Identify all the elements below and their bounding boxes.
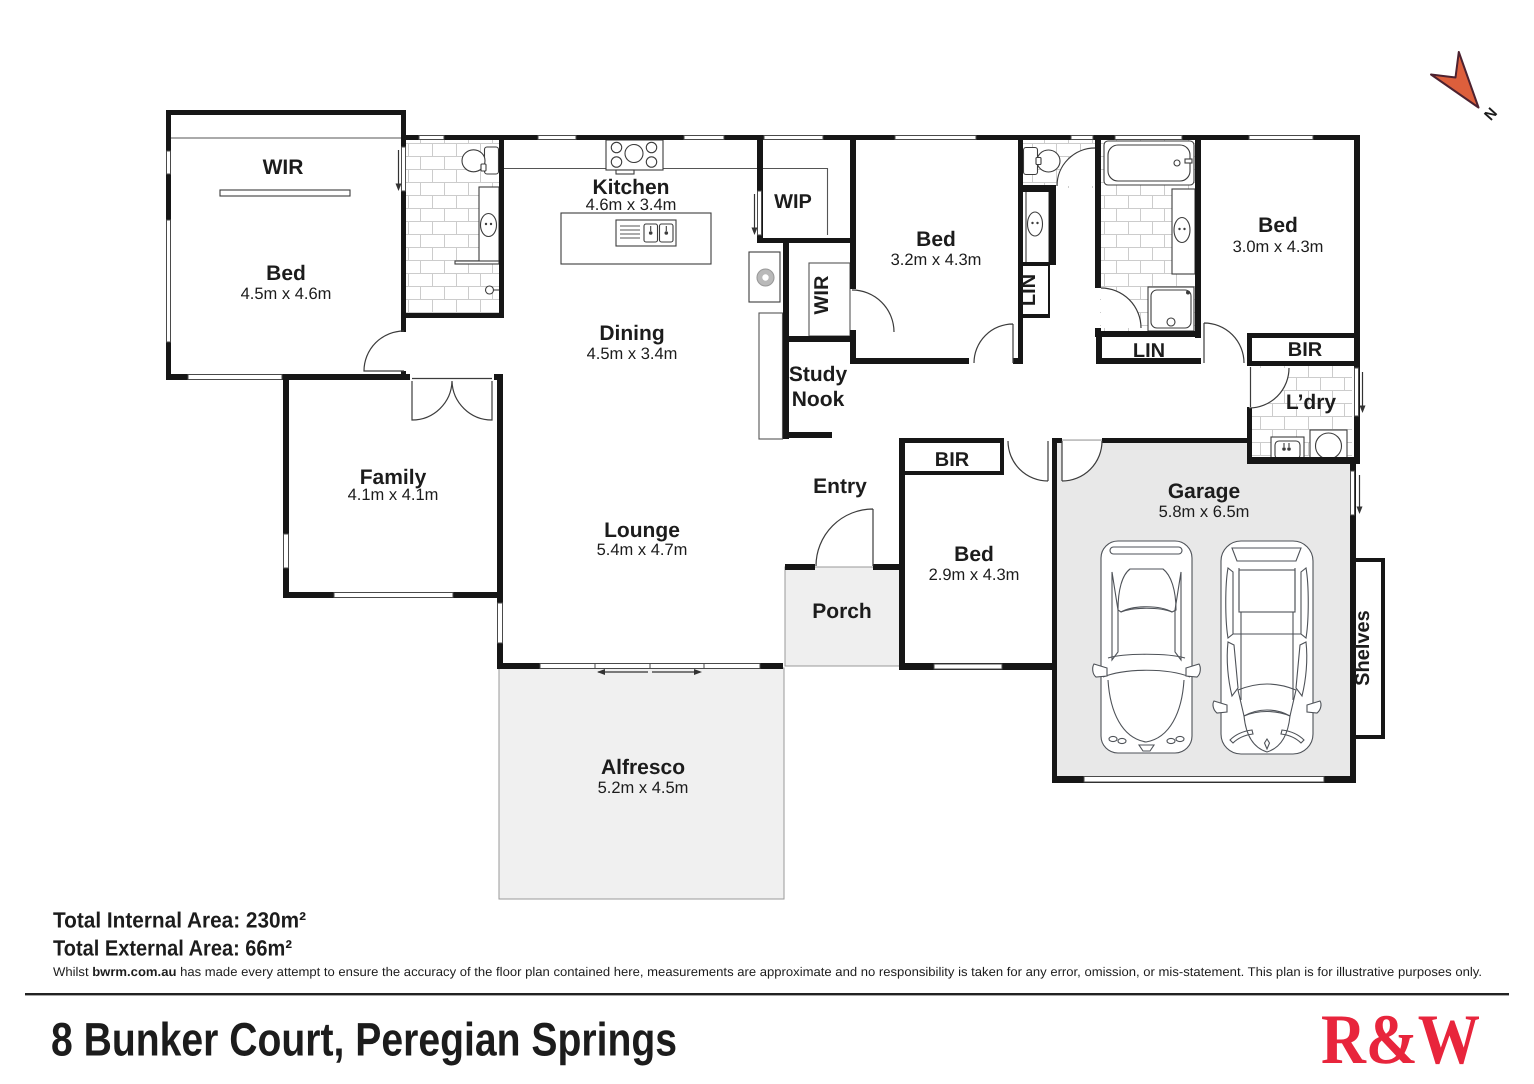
svg-text:Bed: Bed: [916, 228, 956, 251]
svg-text:3.0m x 4.3m: 3.0m x 4.3m: [1233, 238, 1324, 256]
svg-text:WIR: WIR: [263, 156, 304, 179]
svg-text:Garage: Garage: [1168, 480, 1240, 503]
svg-text:WIR: WIR: [811, 275, 833, 314]
svg-text:LIN: LIN: [1018, 274, 1040, 306]
svg-text:4.5m x 4.6m: 4.5m x 4.6m: [241, 285, 332, 303]
svg-text:Nook: Nook: [792, 388, 845, 411]
svg-text:L’dry: L’dry: [1286, 391, 1337, 414]
svg-text:LIN: LIN: [1133, 340, 1165, 362]
svg-text:Total Internal Area: 230m²: Total Internal Area: 230m²: [53, 908, 306, 933]
svg-text:Entry: Entry: [813, 475, 867, 498]
svg-text:3.2m x 4.3m: 3.2m x 4.3m: [891, 251, 982, 269]
svg-text:Total External Area: 66m²: Total External Area: 66m²: [53, 936, 292, 961]
svg-text:Bed: Bed: [954, 543, 994, 566]
svg-text:4.5m x 3.4m: 4.5m x 3.4m: [587, 345, 678, 363]
svg-text:Whilst bwrm.com.au has made ev: Whilst bwrm.com.au has made every attemp…: [53, 965, 1482, 979]
svg-text:5.8m x 6.5m: 5.8m x 6.5m: [1159, 503, 1250, 521]
svg-text:Dining: Dining: [599, 322, 664, 345]
svg-text:Bed: Bed: [266, 262, 306, 285]
svg-text:WIP: WIP: [774, 191, 812, 213]
svg-text:Bed: Bed: [1258, 214, 1298, 237]
svg-text:Study: Study: [789, 363, 848, 386]
svg-text:R&W: R&W: [1321, 1001, 1480, 1079]
svg-text:5.2m x 4.5m: 5.2m x 4.5m: [598, 779, 689, 797]
svg-text:4.1m x 4.1m: 4.1m x 4.1m: [348, 486, 439, 504]
svg-text:4.6m x 3.4m: 4.6m x 3.4m: [586, 196, 677, 214]
svg-text:Alfresco: Alfresco: [601, 756, 685, 779]
svg-text:2.9m x 4.3m: 2.9m x 4.3m: [929, 566, 1020, 584]
svg-text:5.4m x 4.7m: 5.4m x 4.7m: [597, 541, 688, 559]
svg-text:Porch: Porch: [812, 600, 872, 623]
svg-text:8 Bunker Court, Peregian Sprin: 8 Bunker Court, Peregian Springs: [51, 1013, 677, 1066]
svg-text:BIR: BIR: [1288, 339, 1323, 361]
svg-text:Shelves: Shelves: [1352, 610, 1374, 686]
svg-text:Lounge: Lounge: [604, 519, 680, 542]
svg-text:BIR: BIR: [935, 449, 970, 471]
